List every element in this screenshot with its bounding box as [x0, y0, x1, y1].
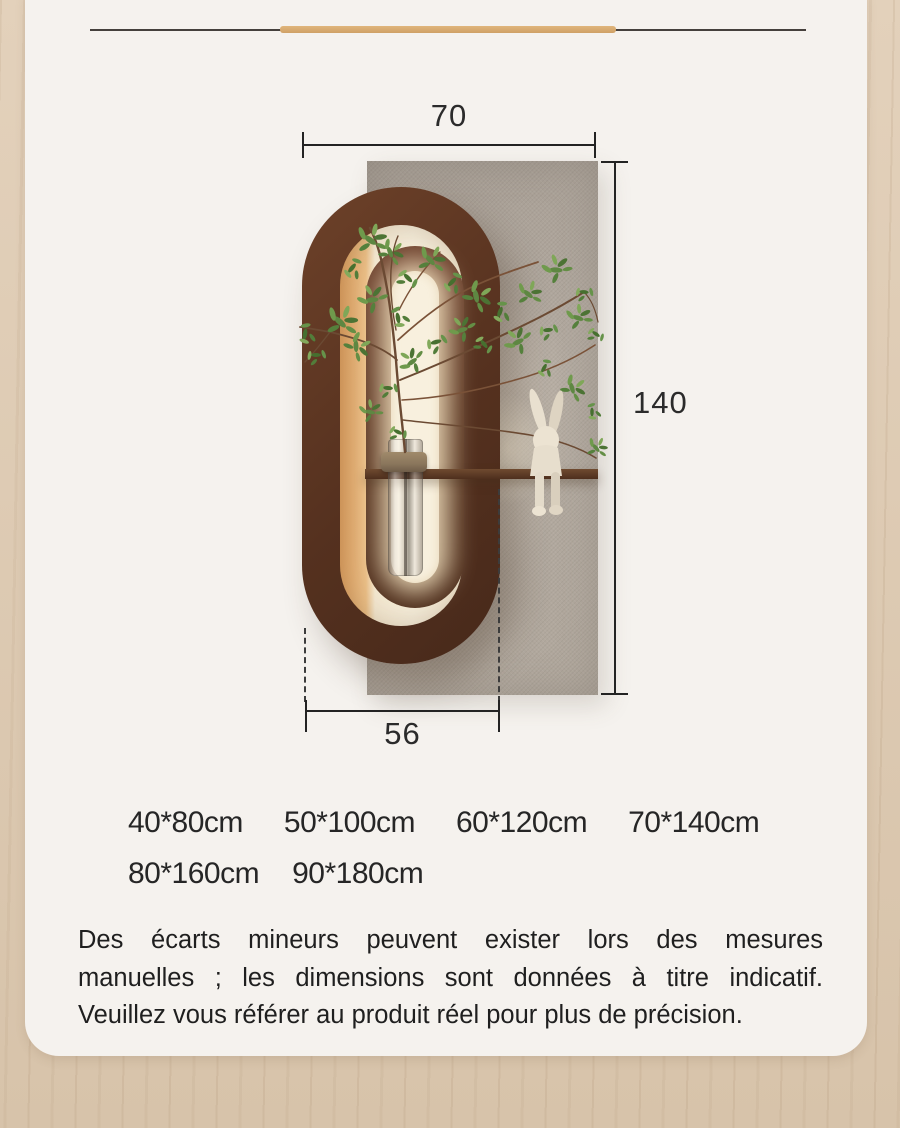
shelf-width-dimension-line [305, 710, 500, 712]
size-options-row-2: 80*160cm 90*180cm [128, 857, 423, 891]
disclaimer-line: Des écarts mineurs peuvent exister lors … [78, 922, 823, 960]
width-dimension-line [302, 144, 596, 146]
size-option: 40*80cm [128, 806, 243, 840]
dimension-tick [594, 132, 596, 158]
height-dimension-label: 140 [633, 385, 688, 421]
width-dimension-label: 70 [302, 98, 596, 134]
size-option: 90*180cm [292, 857, 423, 891]
disclaimer-text: Des écarts mineurs peuvent exister lors … [78, 922, 823, 1035]
dimension-tick [601, 693, 628, 695]
dashed-guide-line [498, 489, 500, 702]
shelf-width-dimension-label: 56 [305, 716, 500, 752]
dimension-tick [302, 132, 304, 158]
height-dimension-line [614, 161, 616, 695]
rabbit-figurine [505, 382, 605, 522]
dimension-tick [601, 161, 628, 163]
accent-bar [280, 26, 616, 33]
disclaimer-line: manuelles ; les dimensions sont données … [78, 960, 823, 998]
page: 70 140 56 40*80cm 50*100cm 60*120cm 70*1… [0, 0, 900, 1140]
dashed-guide-line [304, 628, 306, 702]
size-option: 50*100cm [284, 806, 415, 840]
size-option: 80*160cm [128, 857, 259, 891]
disclaimer-line: Veuillez vous référer au produit réel po… [78, 997, 823, 1035]
size-option: 70*140cm [628, 806, 759, 840]
size-option: 60*120cm [456, 806, 587, 840]
size-options-row-1: 40*80cm 50*100cm 60*120cm 70*140cm [128, 806, 759, 840]
